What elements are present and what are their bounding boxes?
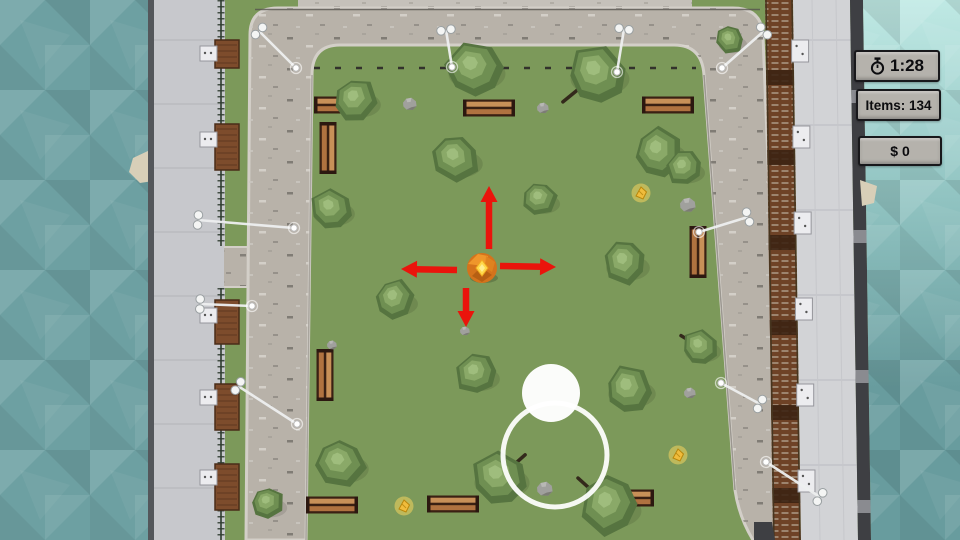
ac-unit bbox=[793, 126, 810, 148]
ac-unit bbox=[794, 212, 811, 234]
ac-unit bbox=[200, 390, 217, 405]
collectible-item[interactable] bbox=[395, 497, 414, 516]
ac-unit bbox=[200, 470, 217, 485]
fire-escape bbox=[215, 40, 239, 68]
bench bbox=[463, 100, 515, 117]
collectible-item[interactable] bbox=[632, 184, 651, 203]
ac-unit bbox=[200, 132, 217, 147]
game-screen: 1:28 Items: 134 $ 0 bbox=[0, 0, 960, 540]
fire-escape bbox=[215, 124, 239, 170]
ac-unit bbox=[200, 46, 217, 61]
game-scene bbox=[0, 0, 960, 540]
quay bbox=[154, 0, 225, 540]
rooftop-strip bbox=[793, 0, 858, 540]
ac-unit bbox=[792, 40, 809, 62]
bench bbox=[320, 122, 337, 174]
fire-escape bbox=[215, 464, 239, 510]
bench bbox=[317, 349, 334, 401]
collectible-item[interactable] bbox=[669, 446, 688, 465]
bench bbox=[642, 97, 694, 114]
bench bbox=[306, 497, 358, 514]
joystick-knob[interactable] bbox=[522, 364, 580, 422]
ac-unit bbox=[795, 298, 812, 320]
quay-edge bbox=[148, 0, 154, 540]
ac-unit bbox=[797, 384, 814, 406]
bench bbox=[427, 496, 479, 513]
